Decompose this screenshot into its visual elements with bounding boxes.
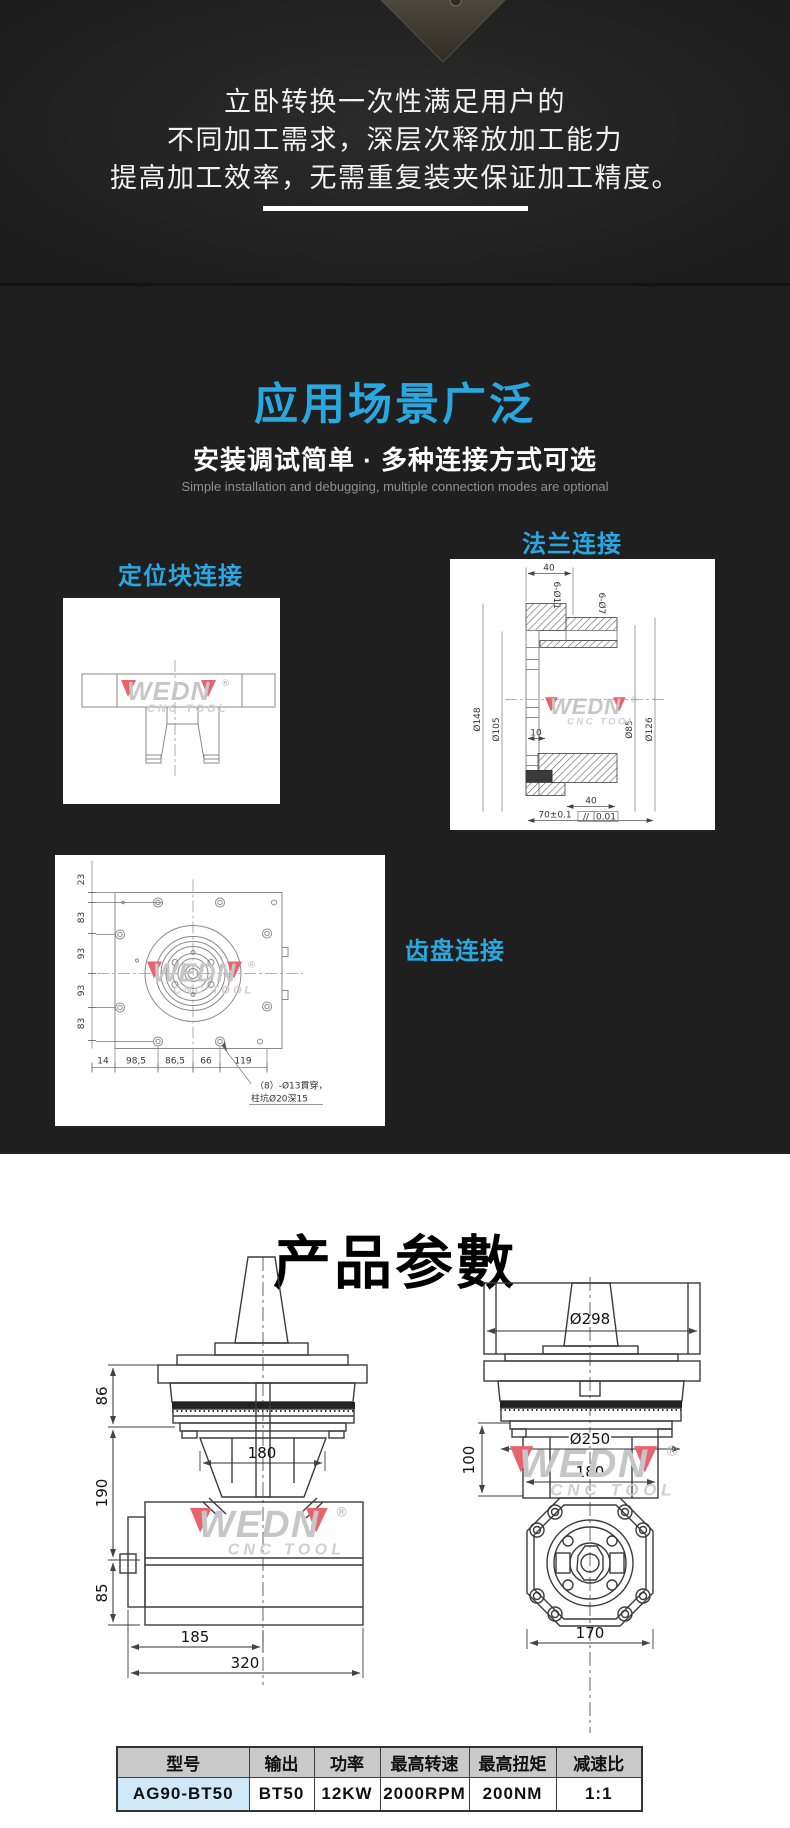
dim-label: 66 (200, 1057, 212, 1067)
watermark-reg: ® (665, 1443, 679, 1459)
spec-table-data-row: AG90-BT50 BT50 12KW 2000RPM 200NM 1:1 (117, 1778, 642, 1812)
scenarios-title: 应用场景广泛 (0, 368, 790, 432)
dim-label: 180 (248, 1444, 277, 1462)
dim-label: 98,5 (126, 1057, 146, 1067)
dim-label: 86 (93, 1386, 111, 1405)
product-detail-page: 立卧转换一次性满足用户的 不同加工需求，深层次释放加工能力 提高加工效率，无需重… (0, 0, 790, 1828)
dim-label: Ø148 (472, 707, 483, 732)
dark-section: 立卧转换一次性满足用户的 不同加工需求，深层次释放加工能力 提高加工效率，无需重… (0, 0, 790, 1154)
cell-max-speed: 2000RPM (380, 1778, 469, 1812)
flange-connection-drawing: 40 6-Ø11 6-Ø7 (450, 559, 715, 830)
dim-label: 320 (231, 1654, 260, 1672)
col-max-torque: 最高扭矩 (469, 1747, 556, 1778)
cell-model: AG90-BT50 (117, 1778, 249, 1812)
tolerance-symbol: // (583, 813, 590, 823)
label-block-connection: 定位块连接 (118, 556, 243, 591)
dim-label: 83 (77, 1018, 87, 1029)
product-photo (379, 0, 506, 63)
watermark-brand: WEDN (153, 958, 237, 988)
watermark-sub: CNC TOOL (228, 1541, 346, 1558)
col-ratio: 减速比 (556, 1747, 642, 1778)
dim-label: Ø298 (570, 1310, 610, 1328)
watermark-brand: WEDN (199, 1503, 320, 1545)
dim-label: 100 (460, 1446, 478, 1475)
cell-ratio: 1:1 (556, 1778, 642, 1812)
watermark-sub: CNC TOOL (173, 985, 254, 997)
watermark-reg: ® (247, 961, 256, 971)
dim-label: 14 (97, 1057, 109, 1067)
watermark-brand: WEDN (127, 676, 211, 706)
hero-banner: 立卧转换一次性满足用户的 不同加工需求，深层次释放加工能力 提高加工效率，无需重… (0, 0, 790, 286)
gear-note-line1: （8）-Ø13貫穿， (255, 1080, 328, 1092)
dim-label: 6-Ø7 (596, 593, 607, 615)
block-connection-drawing: WEDN ® CNC TOOL (63, 598, 280, 804)
watermark-brand: WEDN (550, 694, 621, 719)
side-view-drawing: 86 190 85 180 185 320 WEDN ® CNC TOOL (70, 1255, 390, 1740)
hero-text-line1: 立卧转换一次性满足用户的 (0, 80, 790, 119)
dim-label: 23 (77, 874, 87, 885)
dim-label: 40 (543, 564, 555, 574)
dim-label: 10 (530, 729, 542, 739)
label-gear-connection: 齿盘连接 (405, 931, 505, 966)
dim-label: Ø105 (491, 717, 502, 741)
watermark: WEDN ® CNC TOOL (545, 694, 638, 726)
dim-label: 86,5 (165, 1057, 185, 1067)
cell-power: 12KW (314, 1778, 380, 1812)
scenarios-subtitle-en: Simple installation and debugging, multi… (0, 479, 790, 494)
col-model: 型号 (117, 1747, 249, 1778)
hero-text-line3: 提高加工效率，无需重复装夹保证加工精度。 (0, 156, 790, 195)
dim-label: 40 (585, 797, 597, 807)
dim-label: 93 (77, 985, 87, 996)
hero-text-line2: 不同加工需求，深层次释放加工能力 (0, 118, 790, 157)
watermark-reg: ® (630, 695, 638, 704)
dim-label: 93 (77, 948, 87, 959)
col-power: 功率 (314, 1747, 380, 1778)
watermark-brand: WEDN (519, 1441, 648, 1486)
gear-drawing-svg: 23 83 93 93 83 14 98,5 86,5 (55, 855, 385, 1126)
cell-max-torque: 200NM (469, 1778, 556, 1812)
col-output: 输出 (249, 1747, 314, 1778)
photo-detail-dot (447, 0, 464, 9)
serration-band (500, 1401, 682, 1408)
dim-label: 170 (576, 1624, 605, 1642)
cell-output: BT50 (249, 1778, 314, 1812)
dim-label: 70±0.1 (538, 811, 571, 821)
dim-label: 185 (181, 1628, 210, 1646)
watermark: WEDN ® CNC TOOL (121, 676, 230, 715)
block-drawing-svg: WEDN ® CNC TOOL (63, 598, 280, 804)
dim-label: 83 (77, 912, 87, 923)
col-max-speed: 最高转速 (380, 1747, 469, 1778)
flange-drawing-svg: 40 6-Ø11 6-Ø7 (450, 559, 715, 830)
label-flange-connection: 法兰连接 (522, 524, 622, 559)
watermark: WEDN ® CNC TOOL (147, 958, 256, 997)
watermark-sub: CNC TOOL (550, 1481, 676, 1500)
gear-note-line2: 柱坑Ø20深15 (251, 1093, 308, 1105)
watermark-reg: ® (335, 1506, 348, 1521)
watermark: WEDN ® CNC TOOL (510, 1441, 679, 1500)
watermark: WEDN ® CNC TOOL (190, 1503, 348, 1558)
dim-label: Ø126 (644, 717, 655, 742)
spec-table-header-row: 型号 输出 功率 最高转速 最高扭矩 减速比 (117, 1747, 642, 1778)
spec-table: 型号 输出 功率 最高转速 最高扭矩 减速比 AG90-BT50 BT50 12… (116, 1746, 643, 1812)
front-view-drawing: Ø298 Ø250 Ø250 180 180 100 (400, 1253, 730, 1745)
gear-connection-drawing: 23 83 93 93 83 14 98,5 86,5 (55, 855, 385, 1126)
watermark-sub: CNC TOOL (567, 716, 636, 726)
dim-label: 85 (93, 1583, 111, 1602)
dim-label: 190 (93, 1479, 111, 1508)
scenarios-subtitle: 安装调试简单 · 多种连接方式可选 (0, 440, 790, 477)
watermark-sub: CNC TOOL (147, 703, 228, 715)
watermark-reg: ® (221, 679, 230, 689)
serration-band (172, 1402, 355, 1409)
dim-label: 0.01 (596, 813, 616, 823)
hero-underline (263, 206, 528, 211)
